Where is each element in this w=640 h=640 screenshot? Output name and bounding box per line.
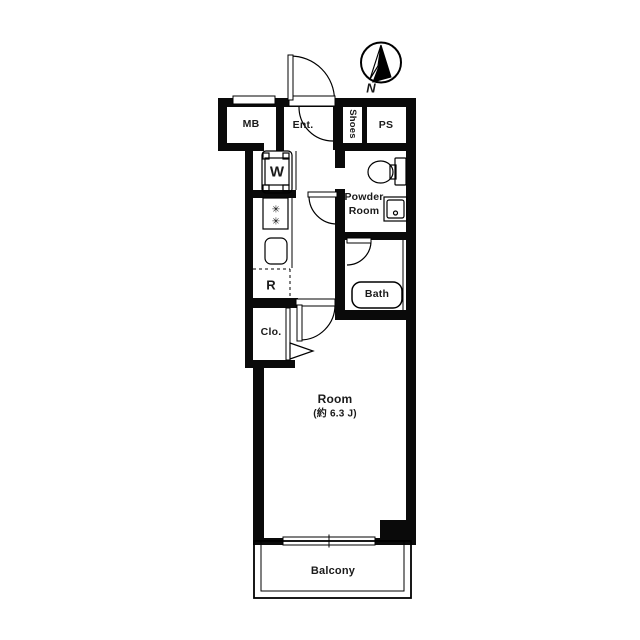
- wall-mb-bottom: [218, 143, 264, 151]
- room-size-label: (約 6.3 J): [313, 408, 356, 421]
- compass-icon: [361, 43, 401, 83]
- room-label-mb: MB: [243, 118, 260, 132]
- wall-bath-bottom: [335, 310, 416, 320]
- wall-mb-ent-divider: [276, 98, 284, 151]
- toilet-icon: [368, 158, 406, 185]
- powder-room-door-leaf: [308, 192, 337, 197]
- room-label-closet: Clo.: [261, 326, 282, 340]
- north-label: N: [366, 81, 376, 98]
- room-label-shoes: Shoes: [346, 109, 358, 139]
- room-label-powder-line1: Powder: [344, 191, 383, 205]
- stove-burner-icon: ✳: [272, 205, 280, 216]
- entrance-door-arc: [291, 56, 335, 100]
- bath-door-arc: [347, 241, 371, 265]
- bath-door-leaf: [347, 238, 371, 243]
- mb-window: [233, 96, 275, 104]
- closet-door-arrow-icon: [290, 343, 313, 359]
- wall-shoes-ps-divider: [362, 107, 367, 144]
- room-label-balcony: Balcony: [311, 564, 355, 578]
- entrance-threshold: [289, 96, 335, 106]
- wall-under-shoes-ps: [335, 143, 416, 151]
- basin-icon: [384, 197, 407, 221]
- room-door-leaf: [297, 305, 302, 341]
- room-label-ps: PS: [379, 119, 393, 133]
- pillar: [380, 520, 413, 543]
- wall-closet-top: [245, 298, 293, 308]
- floor-plan-drawing: [0, 0, 640, 640]
- wall-right: [406, 98, 416, 543]
- room-label-main: Room: [318, 392, 353, 408]
- wall-closet-bottom: [245, 360, 295, 368]
- walls: [218, 98, 416, 545]
- room-label-powder-line2: Room: [349, 205, 380, 219]
- wall-room-left: [253, 360, 264, 545]
- room-label-washer: W: [270, 162, 284, 182]
- room-door-arc: [300, 305, 335, 340]
- entrance-door-leaf: [288, 55, 293, 100]
- room-label-refrigerator: R: [266, 278, 276, 295]
- stove-burner-icon: ✳: [272, 217, 280, 228]
- powder-room-door-arc: [309, 196, 337, 224]
- room-label-entrance: Ent.: [293, 119, 314, 133]
- kitchen-sink-icon: [265, 238, 287, 264]
- fixtures: [262, 151, 407, 359]
- floor-plan: MB Ent. Shoes PS Powder Room Bath W R Cl…: [0, 0, 640, 640]
- wall-bath-west: [335, 240, 345, 320]
- wall-kitchen-left: [245, 143, 253, 368]
- room-label-bath: Bath: [365, 288, 389, 302]
- wall-powder-west-upper: [335, 143, 345, 168]
